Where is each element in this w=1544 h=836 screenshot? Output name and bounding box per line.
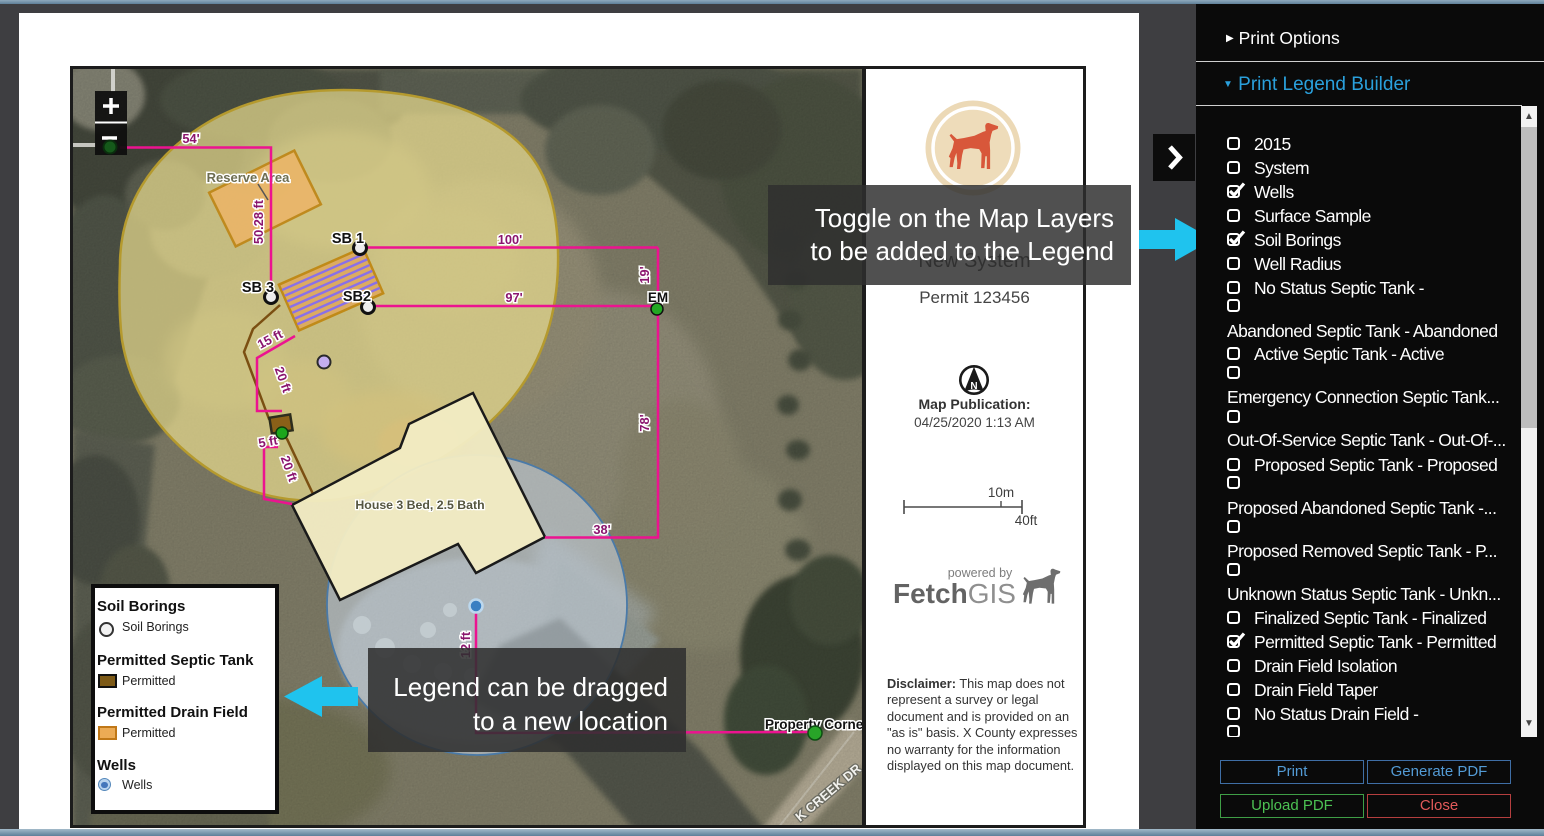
svg-text:10m: 10m <box>988 485 1014 500</box>
svg-text:FetchGIS: FetchGIS <box>893 578 1016 609</box>
svg-text:N: N <box>970 381 977 392</box>
svg-text:SB 1: SB 1 <box>332 231 364 247</box>
svg-text:19': 19' <box>637 266 652 283</box>
svg-text:SB2: SB2 <box>343 289 371 305</box>
svg-text:38': 38' <box>593 522 610 537</box>
svg-text:100': 100' <box>498 232 522 247</box>
svg-text:97': 97' <box>505 290 522 305</box>
svg-text:SB 3: SB 3 <box>242 280 274 296</box>
svg-text:House 3 Bed, 2.5 Bath: House 3 Bed, 2.5 Bath <box>355 498 484 512</box>
svg-text:40ft: 40ft <box>1015 513 1038 528</box>
svg-text:78': 78' <box>637 414 652 431</box>
svg-text:54': 54' <box>182 131 199 146</box>
svg-text:Reserve Area: Reserve Area <box>207 170 290 185</box>
svg-text:50.28 ft: 50.28 ft <box>251 199 266 244</box>
